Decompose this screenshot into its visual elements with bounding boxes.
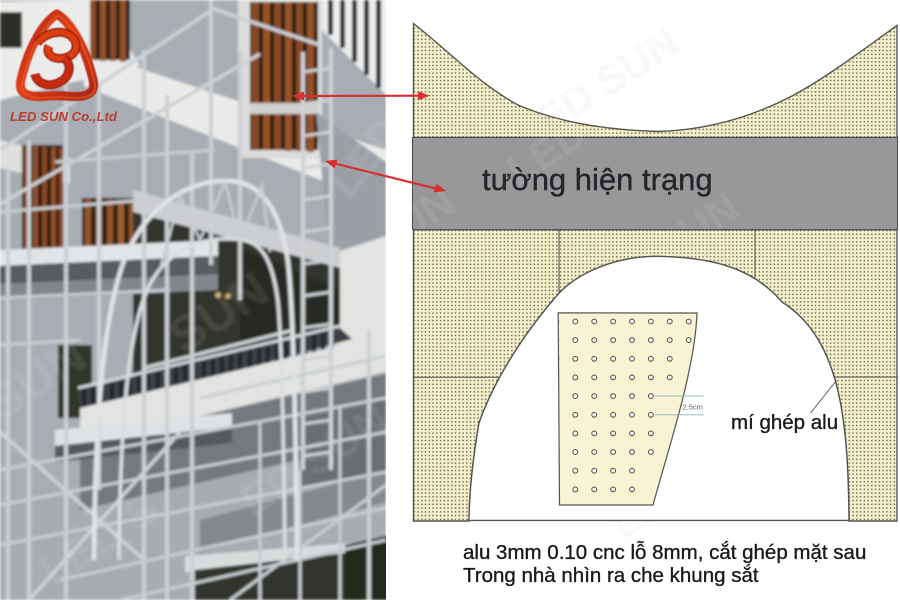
- svg-text:2.5cm: 2.5cm: [683, 403, 703, 412]
- svg-text:mí ghép alu: mí ghép alu: [731, 411, 838, 434]
- svg-text:Trong nhà nhìn ra che khung sắ: Trong nhà nhìn ra che khung sắt: [463, 564, 759, 587]
- svg-text:LED SUN Co.,Ltd: LED SUN Co.,Ltd: [10, 109, 118, 124]
- svg-text:tường hiện trạng: tường hiện trạng: [482, 162, 713, 197]
- svg-text:alu 3mm 0.10 cnc lỗ 8mm, cắt g: alu 3mm 0.10 cnc lỗ 8mm, cắt ghép mặt sa…: [463, 541, 866, 564]
